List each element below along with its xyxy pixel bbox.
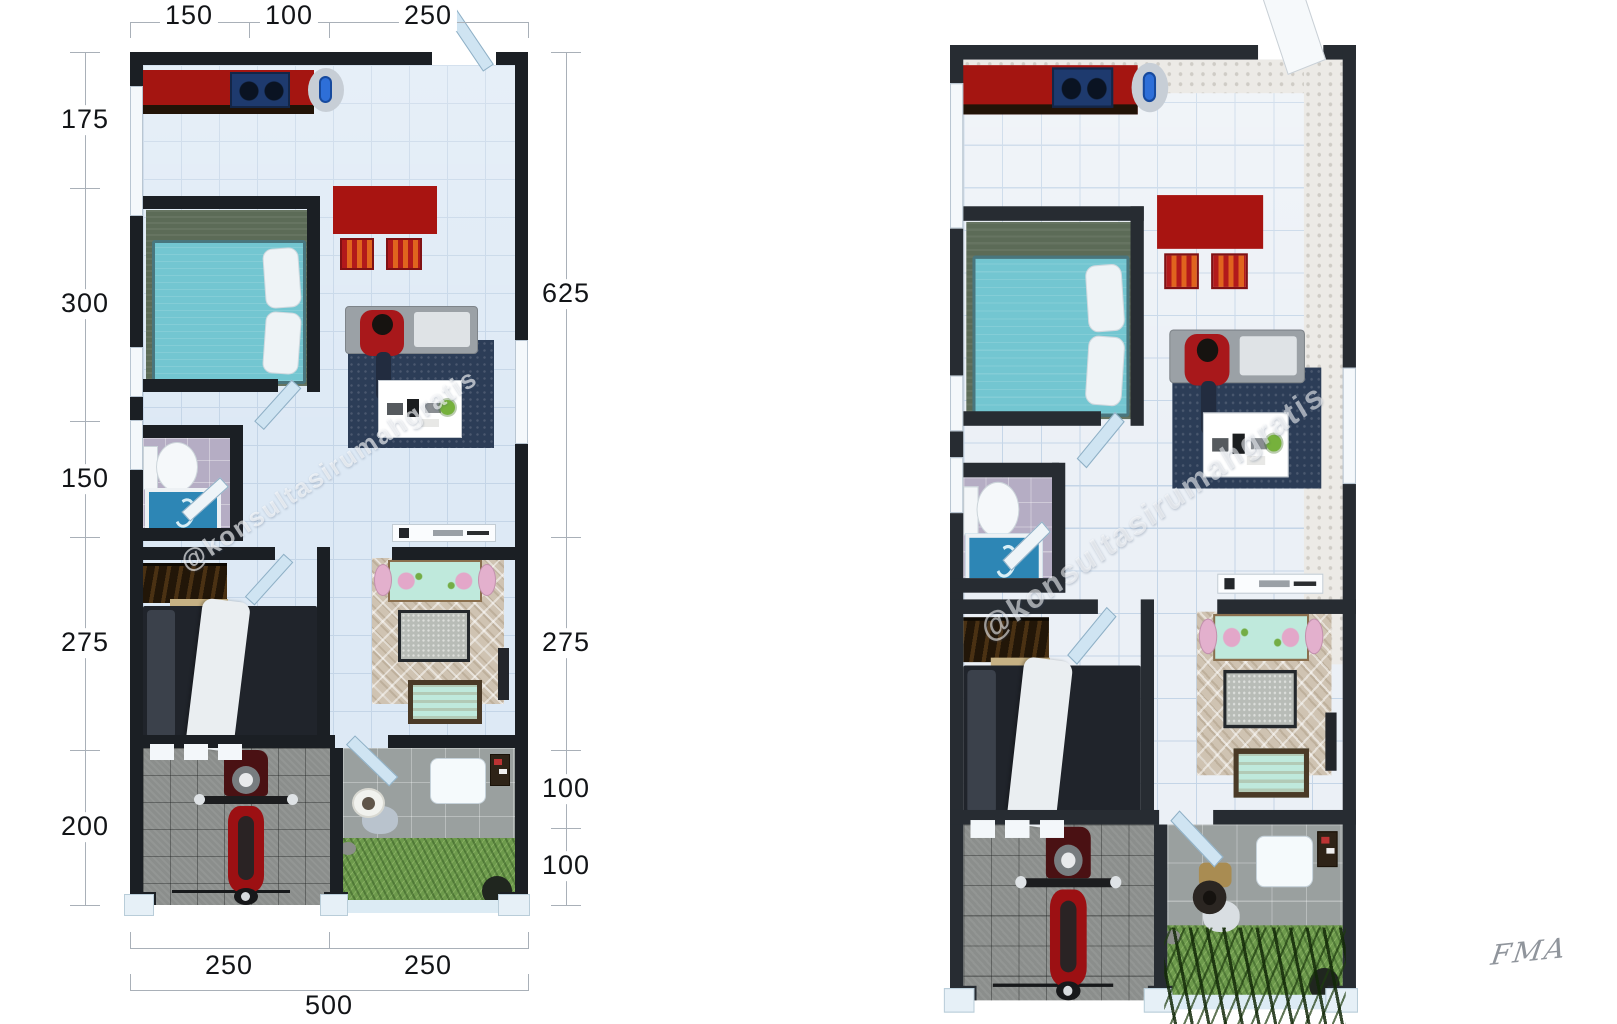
- toilet-bowl: [977, 482, 1020, 538]
- person-head: [1197, 338, 1218, 362]
- motorcycle-seat: [1060, 901, 1076, 973]
- dimension-tick: [70, 421, 100, 422]
- dimension-label: 300: [56, 289, 114, 319]
- dimension-label: 175: [56, 105, 114, 135]
- wall: [392, 547, 528, 560]
- dimension-tick: [70, 905, 100, 906]
- dimension-tick: [249, 22, 250, 38]
- garden-table: [1256, 836, 1313, 888]
- pink-chair: [1305, 618, 1323, 654]
- bench: [1234, 748, 1309, 797]
- wall: [950, 206, 1144, 221]
- dining-chair: [386, 238, 422, 270]
- dimension-label: 250: [200, 951, 258, 981]
- bench: [408, 680, 482, 724]
- window: [130, 86, 143, 216]
- plan-3d-render: @konsultasirumahgratis: [950, 45, 1356, 1000]
- motorcycle-dash: [232, 766, 260, 794]
- pillar: [944, 988, 975, 1013]
- dining-chair: [1211, 253, 1248, 289]
- garden-person-hat: [352, 788, 385, 818]
- pillar: [124, 894, 154, 916]
- garden-tray: [1317, 831, 1337, 867]
- motorcycle-handlebar: [1019, 878, 1117, 887]
- wall: [130, 196, 320, 209]
- pink-chair: [478, 564, 496, 596]
- window: [130, 347, 143, 397]
- window: [950, 457, 963, 513]
- pillow: [262, 247, 302, 309]
- dimension-tick: [551, 750, 581, 751]
- pillow: [1085, 263, 1126, 333]
- wall: [317, 547, 330, 748]
- gas-stove: [1052, 67, 1113, 107]
- dimension-tick: [528, 22, 529, 38]
- dimension-tick: [130, 932, 131, 948]
- motorcycle-seat: [238, 816, 254, 880]
- dimension-tick: [70, 537, 100, 538]
- window: [130, 420, 143, 470]
- dimension-tick: [551, 905, 581, 906]
- kitchen-sink: [308, 68, 344, 112]
- window: [950, 375, 963, 431]
- window: [950, 83, 963, 229]
- mint-table: [1213, 614, 1309, 661]
- dimension-tick: [329, 932, 330, 948]
- plan-2d-dimensioned: @konsultasirumahgratis: [130, 52, 528, 905]
- motorcycle-wheel: [234, 888, 258, 905]
- dimension-label: 150: [160, 1, 218, 31]
- dimension-label: 100: [537, 774, 595, 804]
- motorcycle: [1040, 827, 1097, 1001]
- dimension-label: 100: [537, 851, 595, 881]
- dimension-label: 200: [56, 812, 114, 842]
- pink-chair: [1199, 618, 1217, 654]
- dining-chair: [340, 238, 374, 270]
- motorcycle-dash: [1054, 845, 1083, 876]
- pillar: [320, 894, 348, 916]
- pillar: [498, 894, 530, 916]
- dimension-tick: [130, 22, 131, 38]
- bed-pillows: [967, 670, 996, 813]
- bamboo-plants: [1164, 928, 1346, 1024]
- dimension-label: 100: [260, 1, 318, 31]
- wall: [330, 748, 343, 905]
- motorcycle-wheel: [1056, 981, 1080, 1000]
- window: [1343, 368, 1356, 484]
- floor-plan: @konsultasirumahgratis: [130, 52, 528, 905]
- wall: [307, 196, 320, 392]
- dimension-tick: [551, 828, 581, 829]
- wall: [950, 45, 1258, 60]
- dimension-line: [130, 948, 529, 949]
- person-head: [372, 314, 393, 335]
- window: [515, 340, 528, 444]
- door-steps: [150, 744, 250, 760]
- garden-table: [430, 758, 486, 804]
- sink-basin: [319, 76, 332, 103]
- signature: FMA: [1489, 931, 1570, 972]
- wall: [130, 379, 278, 392]
- garden-person: [352, 788, 398, 836]
- dimension-label: 275: [537, 628, 595, 658]
- wall: [950, 463, 1059, 478]
- console-shelf: [1217, 574, 1323, 594]
- garden-person-hat: [1193, 881, 1227, 915]
- dimension-tick: [551, 537, 581, 538]
- wall: [130, 425, 237, 438]
- red-dining-table: [1157, 195, 1263, 249]
- kitchen-sink: [1132, 63, 1169, 112]
- motorcycle-handlebar: [198, 796, 294, 804]
- gas-stove: [230, 72, 290, 108]
- pillow: [1085, 335, 1126, 407]
- wall: [1131, 206, 1144, 426]
- dimension-label: 250: [399, 1, 457, 31]
- center-table: [1223, 670, 1296, 728]
- dimension-tick: [528, 932, 529, 948]
- sink-basin: [1143, 72, 1156, 102]
- dimension-tick: [130, 974, 131, 990]
- toilet-bowl: [156, 442, 198, 492]
- wall: [1141, 599, 1154, 824]
- bed-pillows: [147, 610, 175, 738]
- center-table: [398, 610, 470, 662]
- dimension-tick: [551, 52, 581, 53]
- floor-plan: @konsultasirumahgratis: [950, 45, 1356, 1000]
- red-dining-table: [333, 186, 437, 234]
- wall-shelf: [498, 648, 509, 700]
- door-steps: [970, 820, 1072, 838]
- wall: [1217, 599, 1356, 614]
- garden-tray: [490, 754, 510, 786]
- dimension-tick: [70, 52, 100, 53]
- garden-person: [1193, 881, 1240, 935]
- mint-table: [388, 560, 482, 602]
- wall: [1343, 45, 1356, 1000]
- wall: [950, 411, 1101, 426]
- pillow: [262, 311, 302, 375]
- wall-shelf: [1325, 713, 1336, 771]
- dining-chair: [1164, 253, 1199, 289]
- dimension-label: 625: [537, 279, 595, 309]
- wall: [515, 52, 528, 905]
- pink-chair: [374, 564, 392, 596]
- dimension-label: 150: [56, 464, 114, 494]
- dimension-tick: [528, 974, 529, 990]
- wall: [130, 52, 432, 65]
- wall: [1213, 810, 1356, 825]
- floorplan-image: @konsultasirumahgratis: [0, 0, 1617, 1024]
- dimension-label: 500: [300, 991, 358, 1021]
- motorcycle: [218, 750, 274, 905]
- dimension-label: 250: [399, 951, 457, 981]
- dimension-tick: [329, 22, 330, 38]
- dimension-tick: [70, 750, 100, 751]
- wall: [388, 735, 528, 748]
- dimension-label: 275: [56, 628, 114, 658]
- dimension-tick: [70, 188, 100, 189]
- console-shelf: [392, 524, 496, 542]
